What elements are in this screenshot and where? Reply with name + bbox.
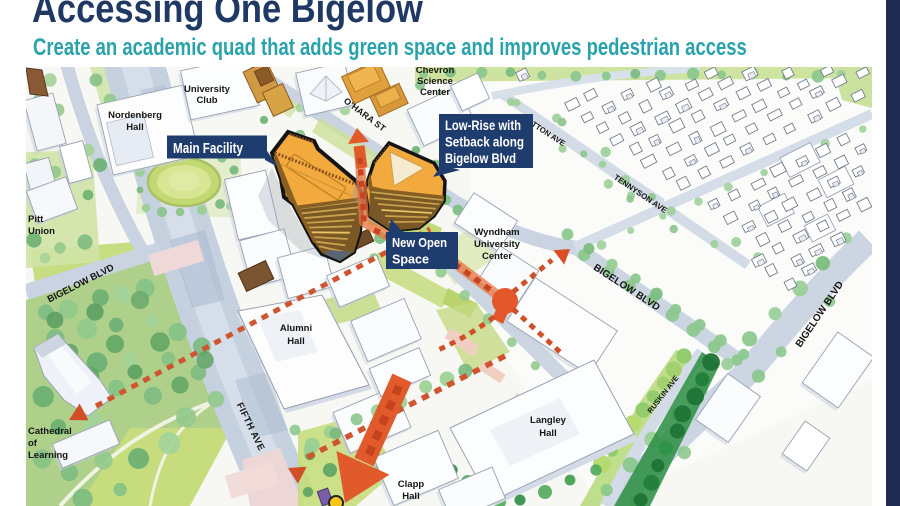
svg-text:Bigelow Blvd: Bigelow Blvd [445,151,516,166]
svg-text:of: of [28,438,38,449]
svg-text:University: University [184,84,231,95]
svg-text:Main Facility: Main Facility [173,141,243,157]
svg-text:New Open: New Open [392,235,447,250]
svg-text:Space: Space [392,252,429,267]
svg-text:Center: Center [482,251,512,262]
svg-text:Wyndham: Wyndham [474,227,519,238]
svg-text:Learning: Learning [28,450,68,461]
svg-text:Setback along: Setback along [445,135,524,150]
svg-text:Pitt: Pitt [28,214,44,225]
svg-text:Hall: Hall [126,122,143,133]
svg-text:Center: Center [420,87,450,98]
svg-text:Nordenberg: Nordenberg [108,110,162,121]
svg-text:Chevron: Chevron [416,67,455,76]
svg-text:Hall: Hall [539,428,556,439]
svg-text:Langley: Langley [530,415,567,426]
svg-text:Cathedral: Cathedral [28,426,72,437]
svg-text:Clapp: Clapp [398,479,425,490]
svg-text:Union: Union [28,226,55,237]
svg-text:Alumni: Alumni [280,323,312,334]
svg-text:Science: Science [417,76,453,87]
svg-text:Club: Club [196,95,217,106]
svg-text:Hall: Hall [287,336,304,347]
svg-text:University: University [474,239,521,250]
svg-text:Hall: Hall [402,491,419,502]
svg-text:Low-Rise with: Low-Rise with [445,118,521,133]
